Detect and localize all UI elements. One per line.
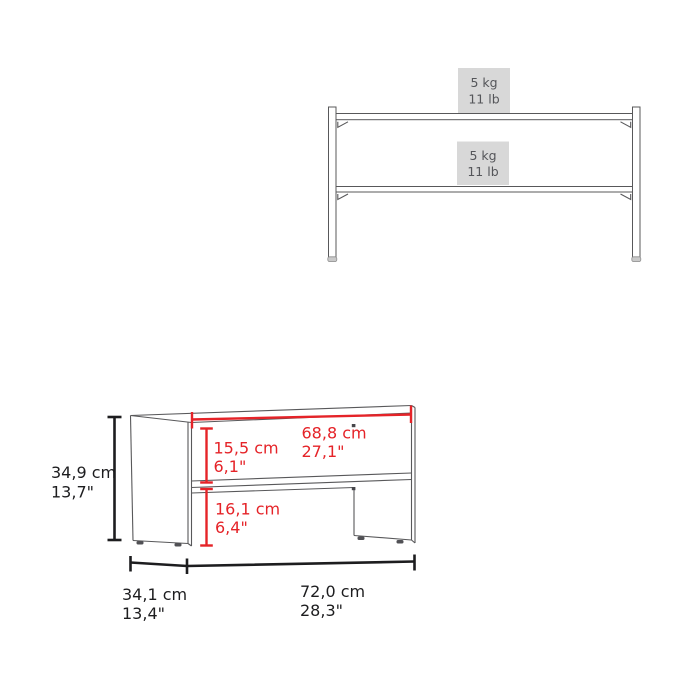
lower-shelf-capacity-lb: 11 lb [467, 164, 498, 179]
perspective-view-drawing [131, 406, 416, 547]
bracket-bottom-left [338, 194, 348, 200]
lower-clearance-label-inch: 6,4" [215, 518, 248, 537]
inner-width-label-inch: 27,1" [302, 442, 345, 461]
upper-clearance-label-cm: 15,5 cm [214, 439, 279, 458]
lower-shelf-capacity-kg: 5 kg [469, 148, 496, 163]
dimension-labels: 34,9 cm 13,7" 15,5 cm 6,1" 68,8 cm 27,1"… [51, 424, 367, 624]
shelf-pin-lower [352, 487, 356, 490]
width-label-inch: 28,3" [300, 601, 343, 620]
diagram-svg: 5 kg 11 lb 5 kg 11 lb [0, 0, 700, 700]
table-foot-back-left [358, 537, 365, 541]
front-view-top-shelf [336, 114, 633, 120]
depth-label-inch: 13,4" [122, 604, 165, 623]
front-view-right-foot [632, 257, 641, 262]
inner-width-dimension-line [192, 415, 411, 420]
table-foot-front-left [137, 541, 144, 545]
left-panel-top-edge [131, 416, 192, 423]
height-label-inch: 13,7" [51, 483, 94, 502]
depth-label-cm: 34,1 cm [122, 585, 187, 604]
front-view-left-leg [329, 107, 337, 257]
lower-clearance-label-cm: 16,1 cm [215, 500, 280, 519]
front-view-left-foot [328, 257, 337, 262]
upper-clearance-label-inch: 6,1" [214, 457, 247, 476]
bracket-top-right [621, 122, 631, 128]
front-view-right-leg [633, 107, 641, 257]
table-foot-back-right [397, 540, 404, 544]
product-dimension-diagram: 5 kg 11 lb 5 kg 11 lb [0, 0, 700, 700]
bracket-top-left [338, 122, 348, 128]
inner-width-label-cm: 68,8 cm [302, 424, 367, 443]
left-panel-left-edge [131, 416, 134, 541]
table-foot-front-right [175, 543, 182, 547]
shelf-front-edge [192, 480, 412, 488]
tabletop-back-edge [131, 406, 412, 416]
bracket-bottom-right [621, 194, 631, 200]
top-shelf-capacity-kg: 5 kg [470, 75, 497, 90]
front-view-drawing: 5 kg 11 lb 5 kg 11 lb [328, 68, 641, 262]
shelf-bottom-edge [192, 488, 355, 494]
top-shelf-capacity-lb: 11 lb [468, 92, 499, 107]
front-view-lower-shelf [336, 187, 633, 193]
height-label-cm: 34,9 cm [51, 463, 116, 482]
depth-width-dimension-line [131, 562, 415, 567]
width-label-cm: 72,0 cm [300, 582, 365, 601]
